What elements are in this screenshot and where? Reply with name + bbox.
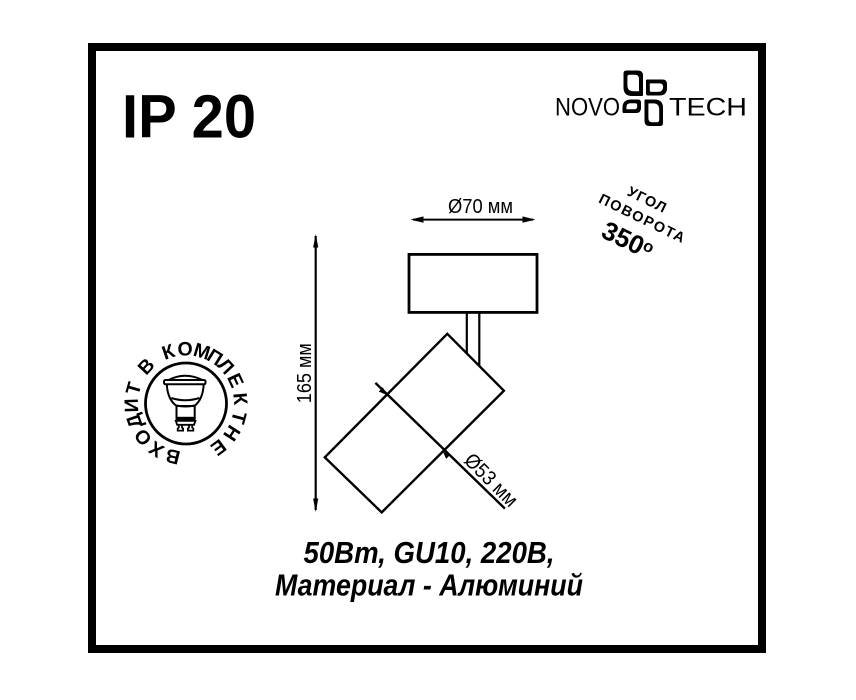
svg-text:Е: Е — [206, 434, 230, 459]
svg-text:Ø53 мм: Ø53 мм — [459, 449, 522, 512]
svg-text:NOVO: NOVO — [555, 93, 620, 121]
svg-text:К: К — [159, 340, 178, 365]
svg-text:Т: Т — [122, 380, 146, 398]
svg-text:И: И — [121, 398, 143, 413]
svg-text:165 мм: 165 мм — [293, 343, 316, 403]
svg-text:TECH: TECH — [669, 93, 747, 121]
svg-text:50Вт, GU10, 220В,: 50Вт, GU10, 220В, — [304, 536, 555, 570]
svg-text:О: О — [177, 338, 193, 360]
svg-text:Ø70 мм: Ø70 мм — [448, 195, 513, 218]
svg-text:К: К — [228, 392, 251, 406]
svg-text:Материал - Алюминий: Материал - Алюминий — [275, 569, 583, 603]
svg-text:IP 20: IP 20 — [122, 82, 256, 150]
